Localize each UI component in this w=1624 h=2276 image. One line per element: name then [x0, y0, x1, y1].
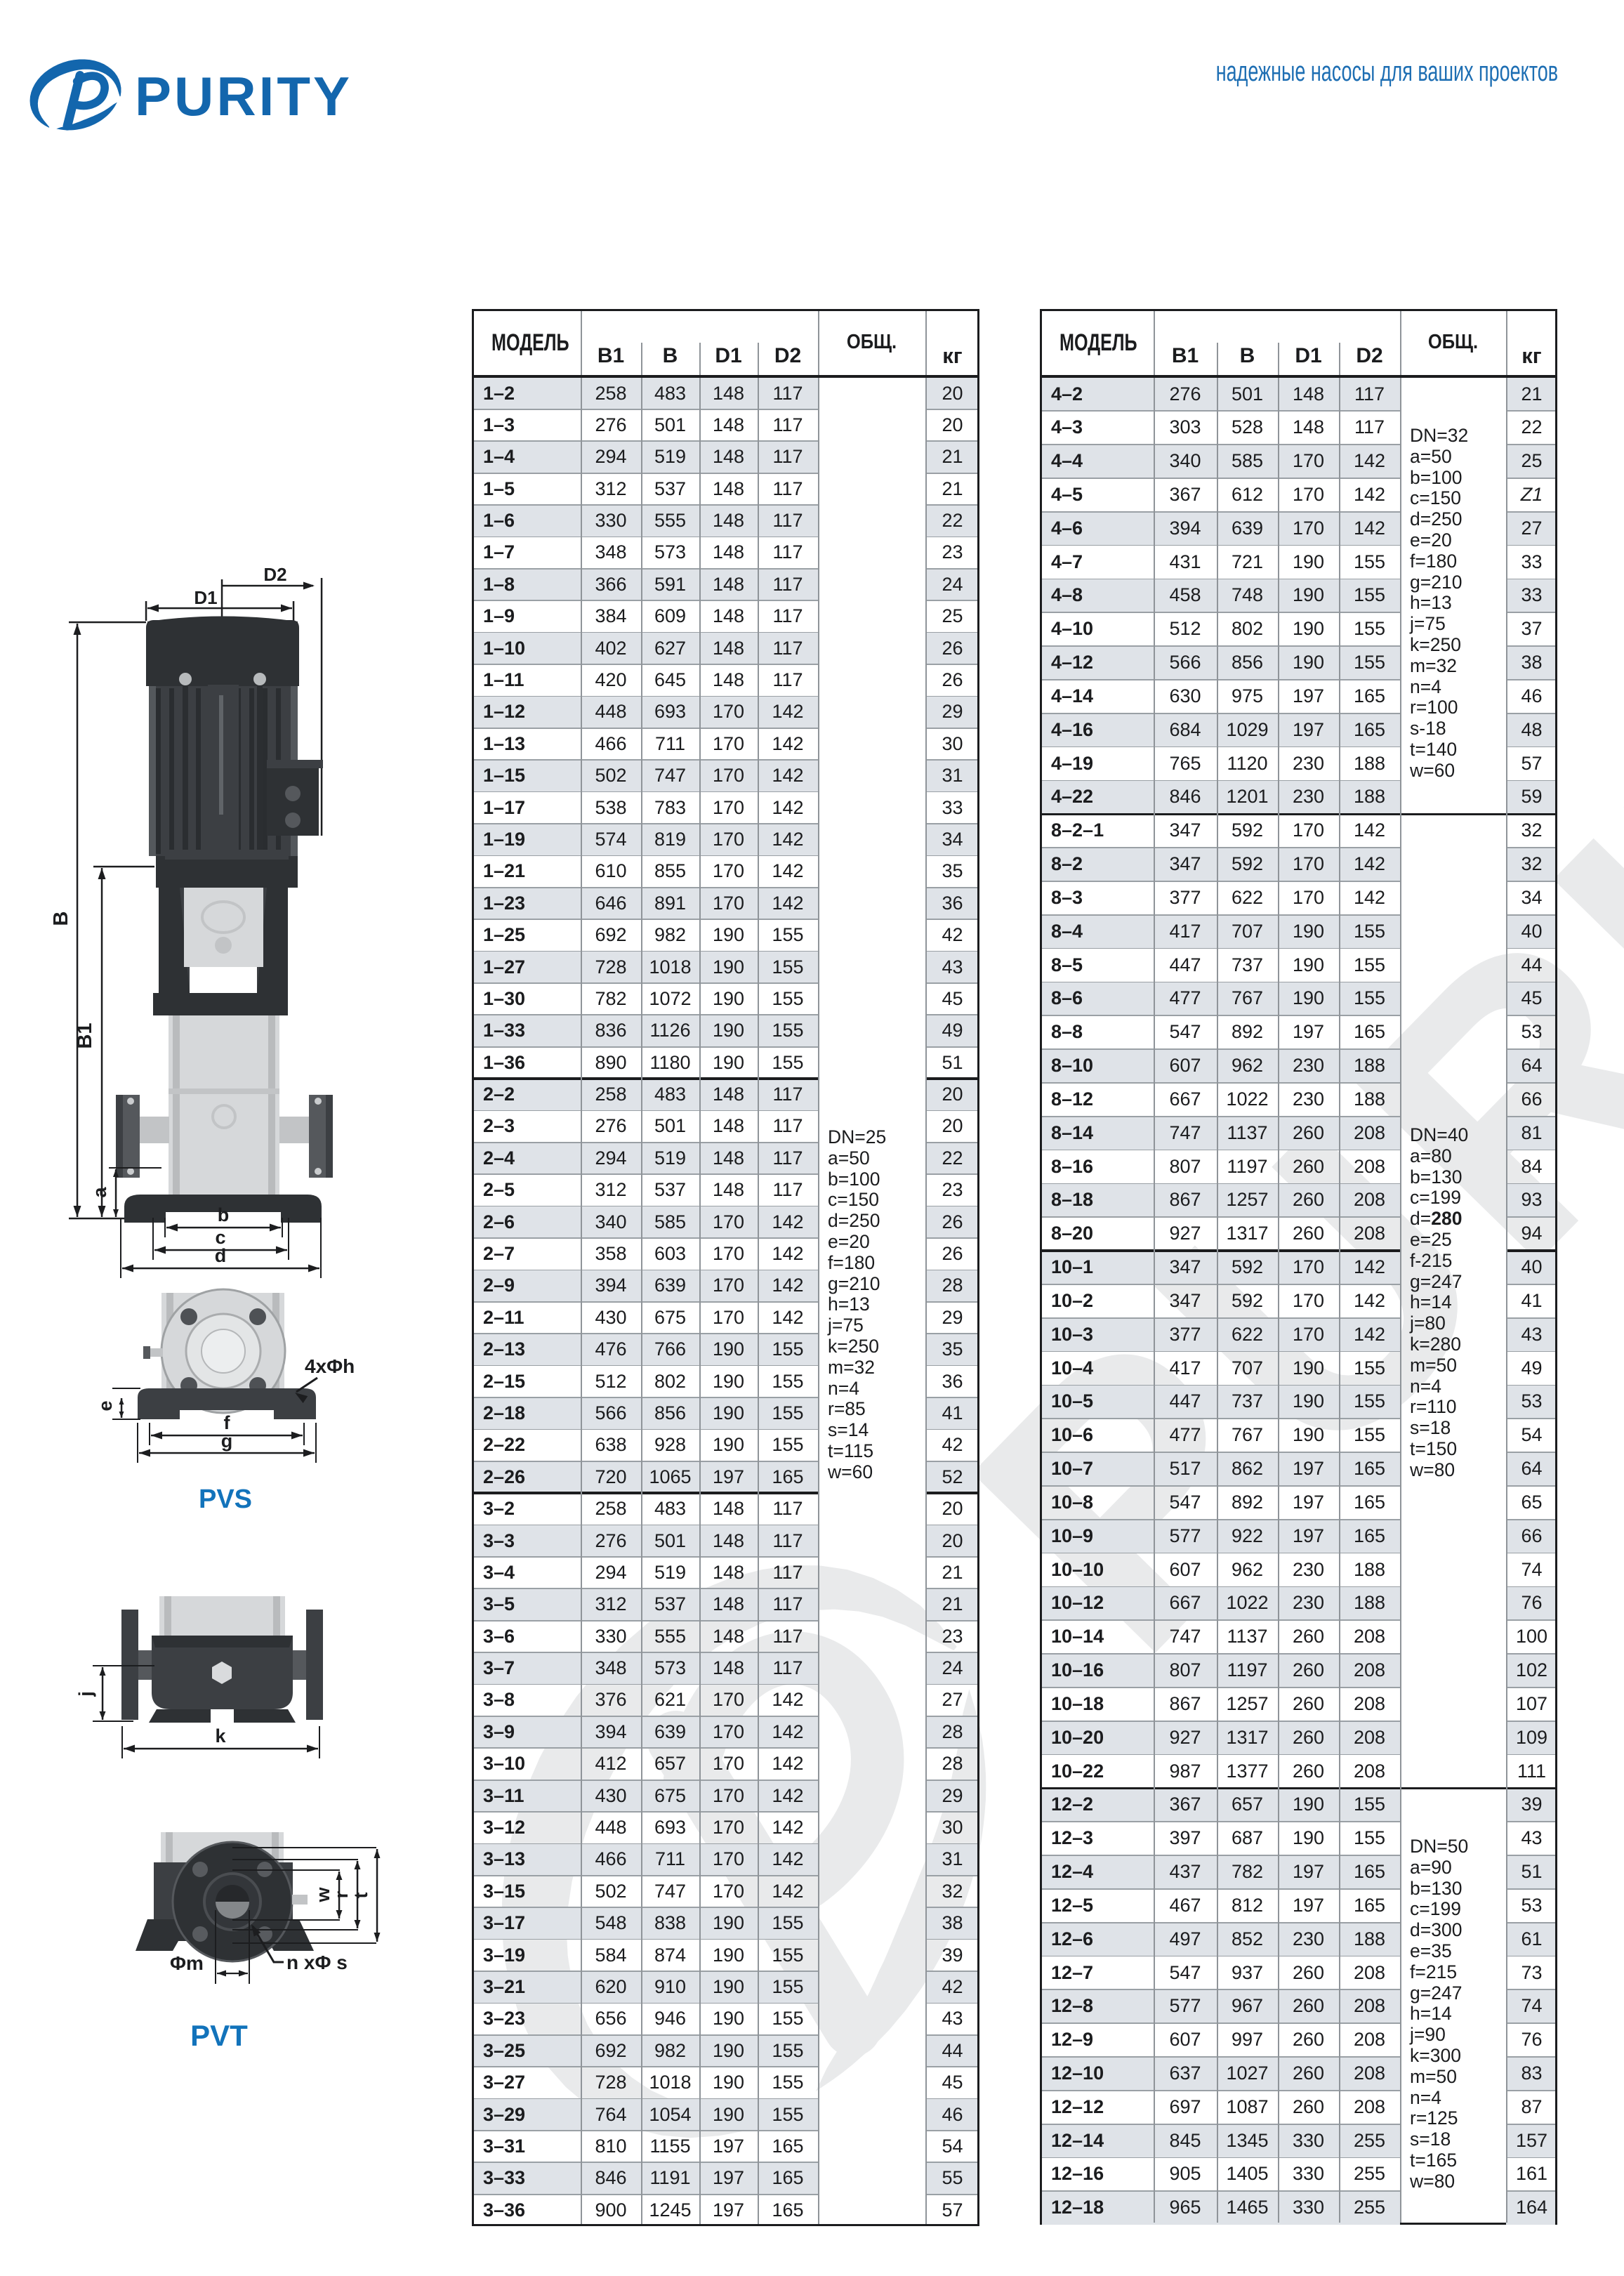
svg-text:D2: D2: [263, 564, 286, 585]
svg-text:t: t: [350, 1893, 371, 1899]
svg-text:PVT: PVT: [190, 2019, 248, 2052]
svg-text:D1: D1: [194, 587, 217, 608]
svg-text:j: j: [75, 1691, 96, 1697]
svg-text:PVS: PVS: [199, 1485, 252, 1514]
svg-text:g: g: [221, 1430, 233, 1452]
svg-text:d: d: [215, 1245, 227, 1266]
svg-text:n xΦ s: n xΦ s: [286, 1952, 348, 1973]
svg-text:B: B: [50, 912, 72, 926]
svg-text:e: e: [95, 1400, 116, 1411]
svg-text:b: b: [218, 1204, 230, 1225]
svg-text:4xΦh: 4xΦh: [305, 1355, 355, 1377]
svg-text:Φm: Φm: [170, 1952, 204, 1974]
svg-text:r: r: [331, 1890, 352, 1898]
svg-text:B1: B1: [74, 1022, 96, 1048]
svg-text:a: a: [89, 1187, 110, 1198]
svg-text:PURITY: PURITY: [135, 65, 352, 127]
svg-text:k: k: [215, 1725, 226, 1747]
